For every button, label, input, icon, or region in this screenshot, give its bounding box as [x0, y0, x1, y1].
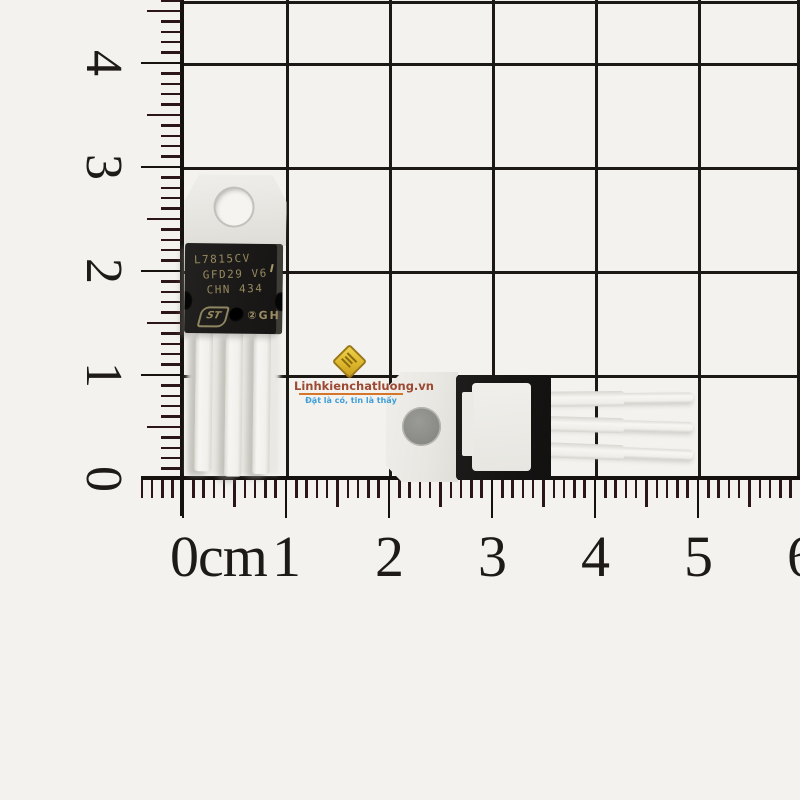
bottom-ruler-tick: [295, 480, 298, 498]
bottom-ruler-tick: [769, 480, 772, 498]
exposed-metal-pad-arm: [462, 392, 474, 456]
watermark-site: Linhkienchatluong.vn: [294, 379, 408, 393]
bottom-ruler-tick: [202, 480, 205, 498]
left-ruler-tick: [141, 62, 181, 65]
bottom-ruler-tick: [728, 480, 731, 498]
lead-middle: [224, 332, 243, 477]
bottom-ruler-tick: [717, 480, 720, 498]
watermark-slogan: Đặt là có, tin là thấy: [294, 396, 408, 405]
left-ruler-tick: [161, 384, 181, 387]
left-ruler-tick: [161, 155, 181, 158]
left-ruler-tick: [161, 176, 181, 179]
bottom-ruler-tick: [233, 480, 236, 507]
left-ruler-tick: [161, 228, 181, 231]
left-ruler-tick: [161, 291, 181, 294]
left-ruler-tick: [161, 457, 181, 460]
left-ruler-tick: [161, 197, 181, 200]
left-ruler-number: 4: [77, 50, 129, 76]
left-ruler-tick: [161, 239, 181, 242]
product-photo: 432100cm123456 L7815CV GFD29 V6 CHN 434 …: [0, 0, 800, 800]
left-ruler-tick: [161, 405, 181, 408]
bottom-ruler-tick: [707, 480, 710, 498]
bottom-ruler-tick: [244, 480, 247, 498]
mold-dimple: [229, 308, 244, 323]
left-ruler-number: 0: [77, 466, 129, 492]
bottom-ruler-number: 5: [684, 528, 712, 586]
bottom-ruler-tick: [336, 480, 339, 507]
exposed-metal-pad: [472, 383, 531, 471]
grid-line-horizontal: [183, 167, 800, 170]
bottom-ruler-tick: [367, 480, 370, 498]
lead-shoulder: [544, 442, 625, 460]
left-ruler-tick: [161, 207, 181, 210]
lead-shoulder: [544, 390, 625, 406]
bottom-ruler-tick: [347, 480, 350, 498]
bottom-ruler-tick: [274, 480, 277, 498]
bottom-ruler-number: 3: [478, 528, 506, 586]
bottom-ruler-tick: [161, 480, 164, 498]
left-ruler-tick: [161, 0, 181, 2]
regulator-front: L7815CV GFD29 V6 CHN 434 ST ②GH: [180, 172, 290, 479]
lead-right: [252, 332, 271, 474]
bottom-ruler-tick: [738, 480, 741, 498]
bottom-ruler-number: 1: [272, 528, 300, 586]
bottom-ruler-tick: [264, 480, 267, 498]
bottom-ruler-number: 0cm: [170, 528, 267, 586]
bottom-ruler-tick: [789, 480, 792, 498]
left-ruler-number: 3: [77, 154, 129, 180]
bottom-ruler-tick: [254, 480, 257, 498]
lead-middle: [544, 418, 693, 432]
bottom-ruler-tick: [748, 480, 751, 507]
bottom-ruler-tick: [759, 480, 762, 498]
left-ruler-tick: [161, 343, 181, 346]
bottom-ruler-tick: [305, 480, 308, 498]
left-ruler-tick: [161, 332, 181, 335]
left-ruler-tick: [161, 353, 181, 356]
left-ruler-tick: [161, 41, 181, 44]
left-ruler-tick: [161, 311, 181, 314]
bottom-ruler-number: 4: [581, 528, 609, 586]
left-ruler-tick: [161, 103, 181, 106]
left-ruler-number: 1: [77, 362, 129, 388]
chip-body: L7815CV GFD29 V6 CHN 434 ST ②GH: [184, 243, 283, 334]
chip-marking-lot: ②GH: [247, 309, 281, 322]
grid-line-horizontal: [183, 1, 800, 4]
bottom-ruler-tick: [223, 480, 226, 498]
package-back: [456, 375, 551, 480]
mounting-hole: [402, 407, 441, 446]
left-ruler-tick: [147, 10, 181, 13]
bottom-ruler-tick: [141, 480, 144, 498]
bottom-ruler-tick: [779, 480, 782, 498]
left-ruler-tick: [161, 145, 181, 148]
left-ruler-tick: [147, 218, 181, 221]
lead-left: [194, 331, 213, 471]
left-ruler-tick: [161, 467, 181, 470]
bottom-ruler-tick: [182, 480, 185, 518]
left-ruler-tick: [141, 270, 181, 273]
side-notch-left: [184, 291, 193, 310]
chip-marking-line1: L7815CV: [194, 252, 251, 267]
bottom-ruler-tick: [171, 480, 174, 498]
left-ruler-tick: [161, 415, 181, 418]
bottom-ruler-tick: [192, 480, 195, 498]
st-logo: ST: [196, 306, 229, 327]
bottom-ruler-tick: [377, 480, 380, 498]
lead-top: [544, 392, 693, 403]
left-ruler-tick: [161, 447, 181, 450]
left-ruler-tick: [161, 301, 181, 304]
left-ruler-tick: [161, 31, 181, 34]
shop-logo-icon: [332, 344, 367, 379]
left-ruler-tick: [147, 426, 181, 429]
watermark: Linhkienchatluong.vn Đặt là có, tin là t…: [294, 347, 408, 407]
left-ruler-tick: [147, 114, 181, 117]
left-ruler-tick: [161, 72, 181, 75]
left-ruler-tick: [141, 166, 181, 169]
bottom-ruler-tick: [316, 480, 319, 498]
left-ruler-tick: [161, 259, 181, 262]
grid-line-horizontal: [183, 63, 800, 66]
left-ruler-tick: [161, 83, 181, 86]
left-ruler-tick: [161, 135, 181, 138]
left-ruler-tick: [161, 363, 181, 366]
left-ruler-tick: [161, 93, 181, 96]
bottom-ruler-number: 6: [787, 528, 800, 586]
bottom-ruler-number: 2: [375, 528, 403, 586]
bottom-ruler-tick: [285, 480, 288, 518]
left-ruler-tick: [141, 374, 181, 377]
left-ruler-tick: [161, 187, 181, 190]
bottom-ruler-tick: [151, 480, 154, 498]
left-ruler-tick: [161, 20, 181, 23]
bottom-ruler-tick: [213, 480, 216, 498]
left-ruler-tick: [147, 322, 181, 325]
grid-line-vertical: [797, 0, 800, 478]
watermark-underline: [299, 393, 403, 395]
grid-line-vertical: [698, 0, 701, 478]
lead-shoulder: [544, 415, 625, 432]
left-ruler-tick: [161, 51, 181, 54]
left-ruler-tick: [161, 436, 181, 439]
left-ruler-tick: [161, 249, 181, 252]
left-ruler-tick: [161, 395, 181, 398]
lead-bottom: [544, 444, 693, 460]
left-ruler-tick: [161, 280, 181, 283]
bottom-ruler-tick: [357, 480, 360, 498]
chip-marking-line2: GFD29 V6: [203, 267, 268, 282]
left-ruler-tick: [161, 124, 181, 127]
left-ruler-number: 2: [77, 258, 129, 284]
scratch-mark: [270, 264, 274, 272]
chip-marking-line3: CHN 434: [206, 282, 263, 297]
bottom-ruler-tick: [326, 480, 329, 498]
